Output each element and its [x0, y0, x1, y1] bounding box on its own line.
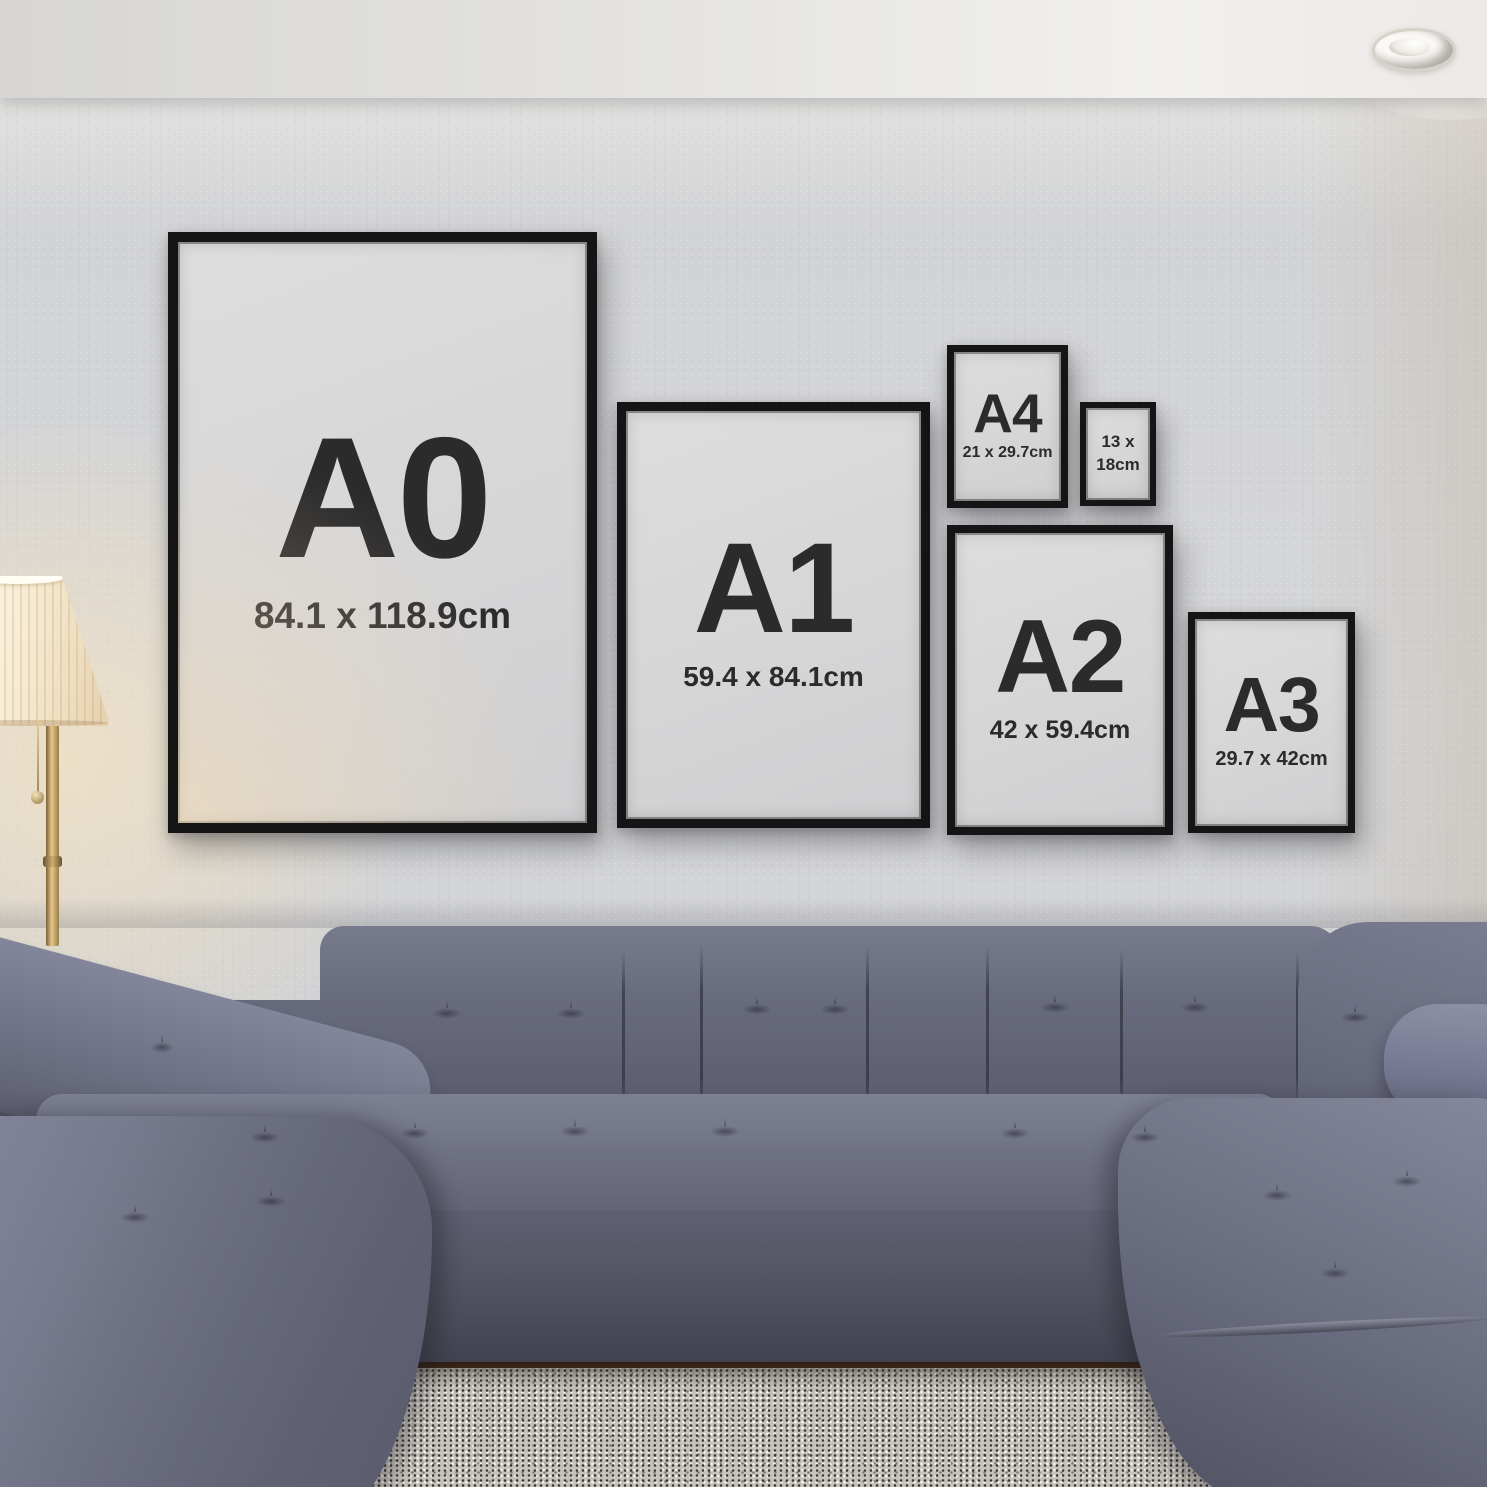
paper-size-label-a0: A0 — [275, 428, 490, 569]
recessed-downlight — [1372, 28, 1456, 72]
paper-size-dimensions-13x18-line1: 13 x — [1101, 431, 1134, 454]
poster-mat-a1: A1 59.4 x 84.1cm — [626, 411, 921, 819]
poster-frame-a0: A0 84.1 x 118.9cm — [168, 232, 597, 833]
poster-frame-a1: A1 59.4 x 84.1cm — [617, 402, 930, 828]
poster-mat-13x18: 13 x 18cm — [1086, 408, 1150, 500]
paper-size-dimensions-a3: 29.7 x 42cm — [1215, 748, 1327, 771]
poster-mat-a0: A0 84.1 x 118.9cm — [178, 242, 587, 823]
ceiling — [0, 0, 1487, 98]
paper-size-label-a3: A3 — [1223, 674, 1319, 737]
poster-frame-a2: A2 42 x 59.4cm — [947, 525, 1173, 835]
paper-size-dimensions-a0: 84.1 x 118.9cm — [254, 595, 511, 637]
poster-frame-13x18: 13 x 18cm — [1080, 402, 1156, 506]
living-room-scene: A0 84.1 x 118.9cm A1 59.4 x 84.1cm A4 21… — [0, 0, 1487, 1487]
paper-size-dimensions-13x18-line2: 18cm — [1096, 454, 1139, 477]
paper-size-dimensions-a1: 59.4 x 84.1cm — [683, 661, 864, 693]
paper-size-dimensions-a2: 42 x 59.4cm — [990, 716, 1130, 745]
lamp-pole-joint — [43, 856, 62, 867]
paper-size-label-a1: A1 — [694, 537, 854, 642]
poster-mat-a3: A3 29.7 x 42cm — [1195, 619, 1348, 826]
paper-size-dimensions-a4: 21 x 29.7cm — [963, 444, 1053, 462]
lamp-chain-ball — [31, 791, 44, 804]
sofa-wall-shadow — [0, 898, 1487, 928]
paper-size-label-a4: A4 — [973, 391, 1042, 436]
poster-mat-a4: A4 21 x 29.7cm — [954, 352, 1061, 501]
lamp-pull-chain — [37, 720, 39, 794]
lamp-pole — [46, 722, 59, 946]
downlight-bulb — [1389, 38, 1431, 56]
poster-frame-a4: A4 21 x 29.7cm — [947, 345, 1068, 508]
shag-rug — [292, 1368, 1260, 1487]
poster-frame-a3: A3 29.7 x 42cm — [1188, 612, 1355, 833]
poster-mat-a2: A2 42 x 59.4cm — [955, 533, 1165, 827]
paper-size-label-a2: A2 — [995, 615, 1125, 700]
